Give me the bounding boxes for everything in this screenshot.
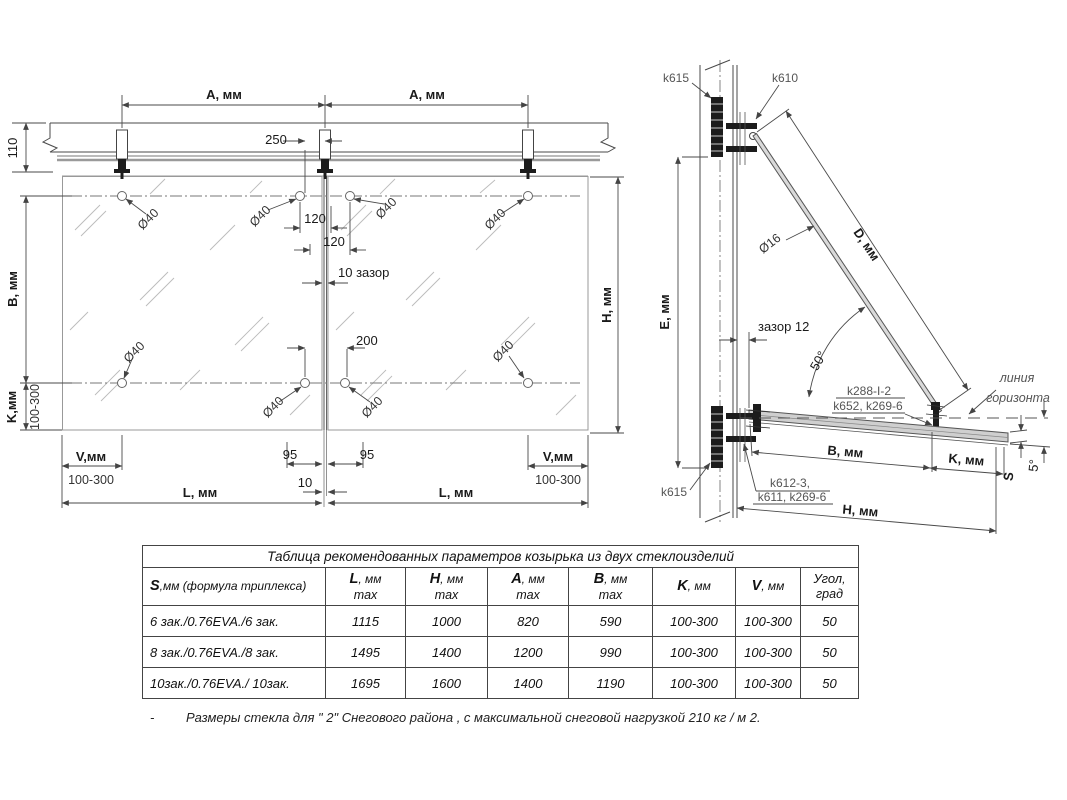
part-label-k652: k652, k269-6 bbox=[833, 399, 903, 413]
hole-label: Ø40 bbox=[260, 394, 287, 421]
dim-label-120a: 120 bbox=[304, 211, 326, 226]
canopy-drawing: A, мм A, мм 110 250 120 120 10 зазор 200… bbox=[0, 0, 1067, 545]
hanger-bolt bbox=[520, 130, 536, 179]
horizon-label-2: горизонта bbox=[986, 391, 1050, 405]
part-label-k615-top: k615 bbox=[663, 71, 689, 85]
part-label-k612: k612-3, bbox=[770, 476, 810, 490]
side-view: k615 k610 D, мм Ø16 E, мм зазор 12 50° k… bbox=[657, 60, 1050, 534]
dim-label-k-side: K, мм bbox=[948, 450, 985, 468]
col-header-l: L, ммmax bbox=[326, 568, 406, 606]
parameters-table: Таблица рекомендованных параметров козыр… bbox=[142, 545, 858, 699]
dim-label-110: 110 bbox=[5, 138, 20, 159]
dim-label-120b: 120 bbox=[323, 234, 345, 249]
dim-label-v-right-range: 100-300 bbox=[535, 473, 581, 487]
dim-label-5deg: 5° bbox=[1025, 459, 1041, 473]
wall-break-top bbox=[705, 60, 730, 70]
hole-label: Ø40 bbox=[482, 206, 509, 233]
table-row: 10зак./0.76EVA./ 10зак.16951600140011901… bbox=[143, 668, 859, 699]
part-label-k615-bottom: k615 bbox=[661, 485, 687, 499]
dim-label-v-right: V,мм bbox=[543, 449, 573, 464]
dim-label-k: K,мм bbox=[4, 391, 19, 423]
glass-hatch-right bbox=[336, 179, 576, 415]
dim-label-s: S bbox=[1001, 471, 1017, 482]
table-row: 6 зак./0.76EVA./6 зак.11151000820590100-… bbox=[143, 606, 859, 637]
dim-label-50deg: 50° bbox=[807, 348, 830, 373]
hole-label: Ø40 bbox=[373, 195, 400, 222]
table-header-row: S,мм (формула триплекса) L, ммmax H, ммm… bbox=[143, 568, 859, 606]
break-mark-right bbox=[601, 123, 615, 152]
glass-hatch-left bbox=[70, 179, 310, 415]
col-header-angle: Угол,град bbox=[801, 568, 859, 606]
dim-label-l-right: L, мм bbox=[439, 485, 473, 500]
front-view: A, мм A, мм 110 250 120 120 10 зазор 200… bbox=[4, 87, 624, 508]
dim-label-dia16: Ø16 bbox=[756, 231, 783, 257]
part-label-k610: k610 bbox=[772, 71, 798, 85]
col-header-a: A, ммmax bbox=[488, 568, 569, 606]
hole-label: Ø40 bbox=[247, 203, 274, 230]
dim-label-b: B, мм bbox=[5, 271, 20, 307]
drawing-sheet: A, мм A, мм 110 250 120 120 10 зазор 200… bbox=[0, 0, 1067, 800]
part-label-k288: k288-I-2 bbox=[847, 384, 891, 398]
dim-label-250: 250 bbox=[265, 132, 287, 147]
dim-label-h: H, мм bbox=[599, 287, 614, 323]
dim-label-b-side: B, мм bbox=[827, 442, 864, 460]
hanger-bolt bbox=[114, 130, 130, 179]
hole-label: Ø40 bbox=[121, 339, 148, 366]
table-title: Таблица рекомендованных параметров козыр… bbox=[143, 546, 859, 568]
break-mark-left bbox=[43, 123, 57, 152]
table-row: 8 зак./0.76EVA./8 зак.149514001200990100… bbox=[143, 637, 859, 668]
hanger-bolt bbox=[317, 130, 333, 179]
upper-anchor-assembly bbox=[711, 97, 757, 165]
col-header-k: K, мм bbox=[653, 568, 736, 606]
col-header-s: S,мм (формула триплекса) bbox=[143, 568, 326, 606]
dim-label-l-left: L, мм bbox=[183, 485, 217, 500]
strut-rod bbox=[753, 134, 942, 413]
part-label-k611: k611, k269-6 bbox=[758, 490, 827, 504]
col-header-b: B, ммmax bbox=[569, 568, 653, 606]
wall-break-bottom bbox=[705, 512, 730, 522]
col-header-v: V, мм bbox=[736, 568, 801, 606]
dim-label-gap10: 10 зазор bbox=[338, 265, 389, 280]
dim-label-95b: 95 bbox=[360, 447, 374, 462]
footnote: - Размеры стекла для " 2" Снегового райо… bbox=[150, 710, 870, 725]
dim-label-10: 10 bbox=[298, 475, 312, 490]
dim-label-a2: A, мм bbox=[409, 87, 445, 102]
hanger-bolts bbox=[114, 130, 536, 179]
dim-label-e: E, мм bbox=[657, 294, 672, 329]
dim-label-h-side: H, мм bbox=[842, 501, 879, 519]
dim-label-d: D, мм bbox=[850, 225, 882, 263]
footnote-text: Размеры стекла для " 2" Снегового района… bbox=[186, 710, 761, 725]
hole-label: Ø40 bbox=[135, 206, 162, 233]
glass-side-profile bbox=[749, 410, 1008, 445]
dim-label-v-left-range: 100-300 bbox=[68, 473, 114, 487]
hole-label: Ø40 bbox=[359, 394, 386, 421]
dim-label-200: 200 bbox=[356, 333, 378, 348]
dim-label-v-left: V,мм bbox=[76, 449, 106, 464]
col-header-h: H, ммmax bbox=[406, 568, 488, 606]
dim-label-95a: 95 bbox=[283, 447, 297, 462]
dim-label-a1: A, мм bbox=[206, 87, 242, 102]
dim-label-k-range: 100-300 bbox=[28, 384, 42, 430]
footnote-dash: - bbox=[150, 710, 186, 725]
horizon-label-1: линия bbox=[999, 371, 1035, 385]
dim-label-gap12: зазор 12 bbox=[758, 319, 809, 334]
